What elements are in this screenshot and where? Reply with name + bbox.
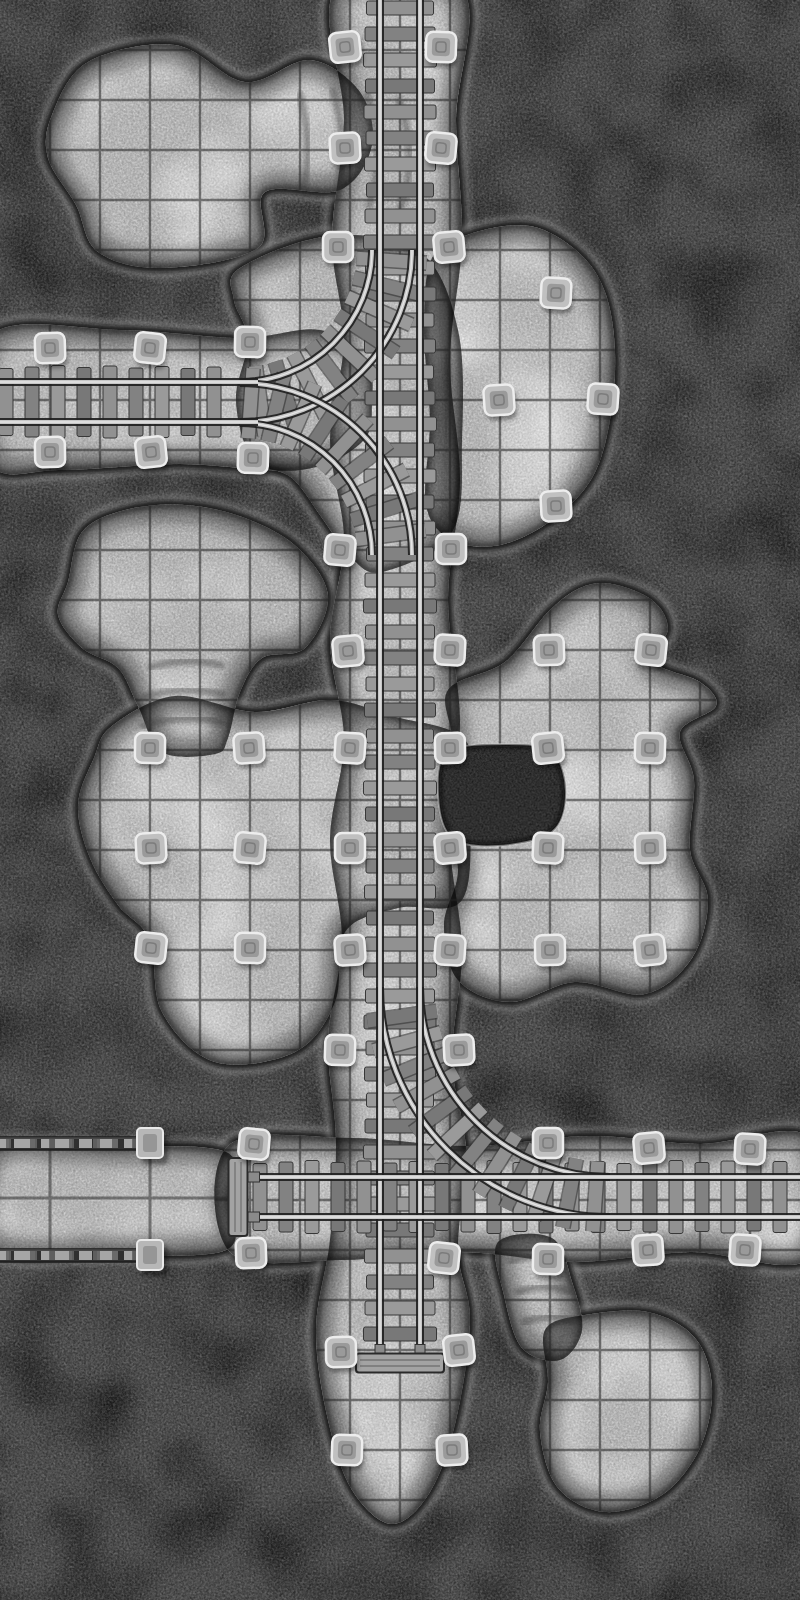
rock-pillar: [532, 731, 567, 769]
rock-pillar: [434, 934, 468, 971]
rock-pillar: [233, 732, 267, 769]
corridor-wall-north: [0, 1137, 146, 1150]
rock-pillar: [332, 635, 367, 673]
west-branch-line-ties: [0, 366, 221, 439]
rock-pillar: [323, 232, 355, 267]
rock-pillar: [235, 1237, 268, 1273]
rock-pillar: [633, 1132, 668, 1170]
rock-pillar: [233, 832, 268, 870]
rock-pillar: [533, 1128, 565, 1163]
rock-pillar: [329, 132, 363, 169]
rock-pillar: [335, 833, 367, 868]
rock-pillar: [540, 490, 574, 527]
rock-pillar: [133, 332, 168, 370]
rock-pillar: [435, 733, 468, 769]
rock-pillar: [533, 634, 566, 670]
rock-pillar: [434, 832, 469, 870]
rock-pillar: [331, 1434, 364, 1470]
rock-pillar: [587, 383, 621, 420]
rock-pillar: [326, 1337, 359, 1373]
rock-pillar: [634, 634, 669, 672]
rock-pillar: [483, 384, 517, 421]
rock-pillar: [634, 933, 669, 971]
rock-pillar: [334, 934, 368, 971]
rock-pillar: [425, 31, 458, 67]
rock-pillar: [237, 442, 270, 478]
rock-pillar: [324, 1034, 357, 1070]
rock-pillar: [323, 534, 358, 572]
corridor-wall-south: [0, 1249, 146, 1262]
rock-pillar: [237, 1128, 272, 1166]
map-viewport: [0, 0, 800, 1600]
rock-pillar: [35, 437, 68, 473]
rock-pillar: [34, 332, 67, 368]
wall-end-post: [137, 1128, 168, 1164]
rock-pillar: [433, 231, 468, 269]
rock-pillar: [443, 1034, 477, 1071]
rock-pillar: [532, 832, 566, 869]
rock-pillar: [535, 935, 568, 971]
rock-pillar: [436, 534, 468, 569]
rock-pillar: [443, 1333, 478, 1371]
rock-pillar: [135, 832, 169, 869]
rock-pillar: [634, 732, 667, 768]
rock-pillar: [135, 435, 170, 473]
rock-pillar: [134, 932, 169, 970]
cave-mine-battle-map: [0, 0, 800, 1600]
rock-pillar: [734, 1133, 768, 1170]
rock-pillar: [436, 1434, 470, 1471]
rock-pillar: [533, 1244, 566, 1280]
rock-pillar: [427, 1242, 462, 1280]
rock-pillar: [540, 277, 574, 314]
rock-pillar: [729, 1234, 763, 1271]
rock-pillar: [329, 30, 364, 68]
rock-pillar: [434, 634, 468, 671]
rock-pillar: [634, 832, 667, 868]
rock-pillar: [135, 733, 168, 769]
rock-pillar: [235, 327, 268, 363]
rock-pillar: [235, 933, 268, 969]
rock-pillar: [334, 732, 368, 769]
wall-end-post: [137, 1240, 168, 1276]
rock-pillar: [424, 132, 459, 170]
rock-pillar: [632, 1234, 666, 1271]
